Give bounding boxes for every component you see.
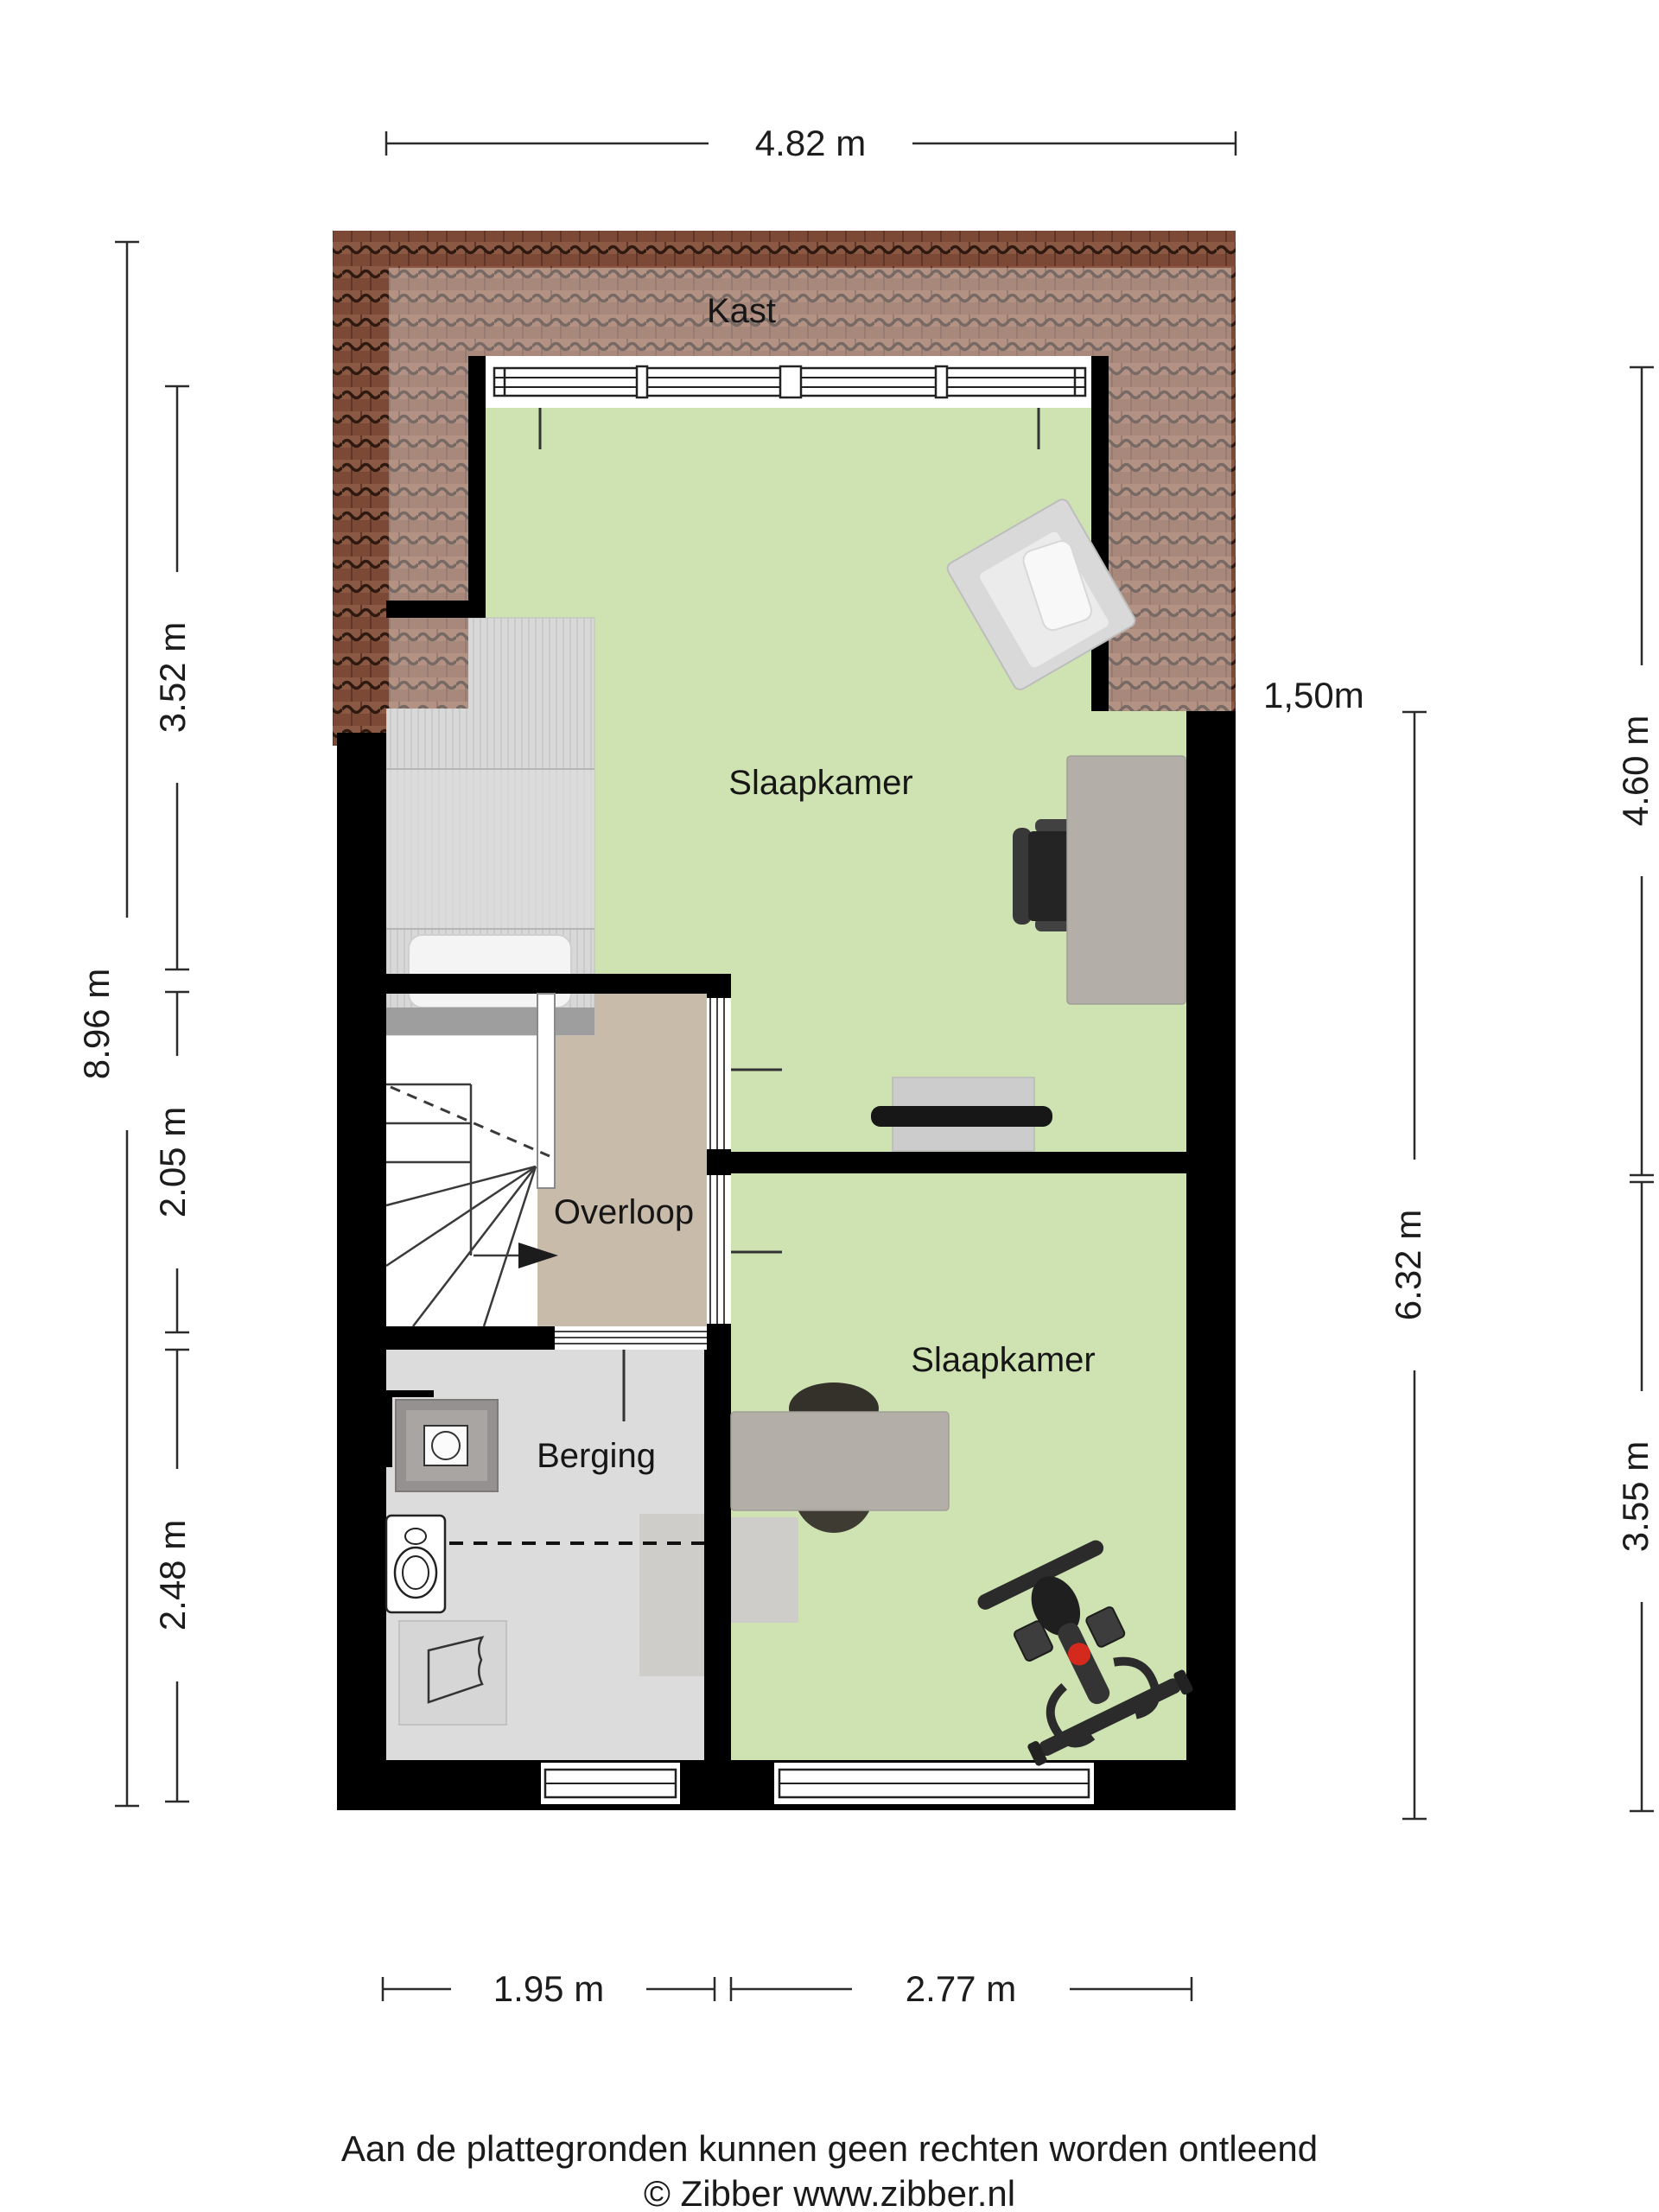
- washing-machine: [386, 1516, 445, 1612]
- window-bedroom2-bottom: [774, 1763, 1094, 1804]
- footer-disclaimer: Aan de plattegronden kunnen geen rechten…: [0, 2128, 1659, 2170]
- stairwell-floor: [386, 994, 537, 1326]
- wall-knee-left: [468, 356, 486, 618]
- wall-outer-left: [337, 733, 386, 1810]
- laundry-basket: [399, 1621, 506, 1725]
- dim-label-left-total: 8.96 m: [78, 920, 116, 1128]
- dim-label-right-seg2: 3.55 m: [1617, 1393, 1655, 1600]
- dim-label-bottom-seg1: 1.95 m: [445, 1970, 652, 2008]
- dim-left-8-96: [115, 242, 139, 1806]
- wall-bed-nook-bottom: [337, 974, 731, 994]
- bed-headboard: [386, 1007, 594, 1035]
- wall-bed-nook-top: [386, 601, 486, 618]
- room-label-slaapkamer-onder: Slaapkamer: [874, 1341, 1133, 1379]
- room-label-slaapkamer-boven: Slaapkamer: [691, 764, 950, 802]
- side-cabinet: [731, 1517, 798, 1623]
- wall-storage-right: [704, 1350, 731, 1763]
- dim-label-left-seg2: 2.05 m: [154, 1058, 192, 1266]
- floorplan-page: Kast Slaapkamer Overloop Berging Slaapka…: [0, 0, 1659, 2212]
- dim-label-right-inner: 6.32 m: [1389, 1161, 1427, 1369]
- landing-floor: [537, 994, 707, 1326]
- wall-bedroom-divider: [731, 1152, 1186, 1173]
- dim-label-top-width: 4.82 m: [707, 124, 914, 162]
- room-label-kast: Kast: [659, 292, 823, 330]
- dim-label-bottom-seg2: 2.77 m: [857, 1970, 1065, 2008]
- desk-1: [1067, 756, 1185, 1004]
- wall-storage-top: [386, 1326, 555, 1350]
- storage-cabinet: [639, 1514, 704, 1676]
- room-label-berging: Berging: [493, 1437, 700, 1475]
- dim-label-left-seg3: 2.48 m: [154, 1471, 192, 1679]
- tv-stand: [871, 1077, 1052, 1151]
- window-storage-bottom: [541, 1763, 680, 1804]
- boiler: [396, 1400, 498, 1491]
- dim-label-left-seg1: 3.52 m: [154, 574, 192, 781]
- dim-label-right-seg1: 4.60 m: [1617, 667, 1655, 874]
- wall-outer-right: [1186, 711, 1236, 1810]
- footer-credit: © Zibber www.zibber.nl: [0, 2173, 1659, 2212]
- dim-label-headroom: 1,50m: [1263, 677, 1436, 715]
- wall-knee-right: [1091, 356, 1109, 711]
- floorplan-canvas: [0, 0, 1659, 2212]
- room-label-overloop: Overloop: [512, 1193, 736, 1231]
- desk-2: [731, 1412, 949, 1510]
